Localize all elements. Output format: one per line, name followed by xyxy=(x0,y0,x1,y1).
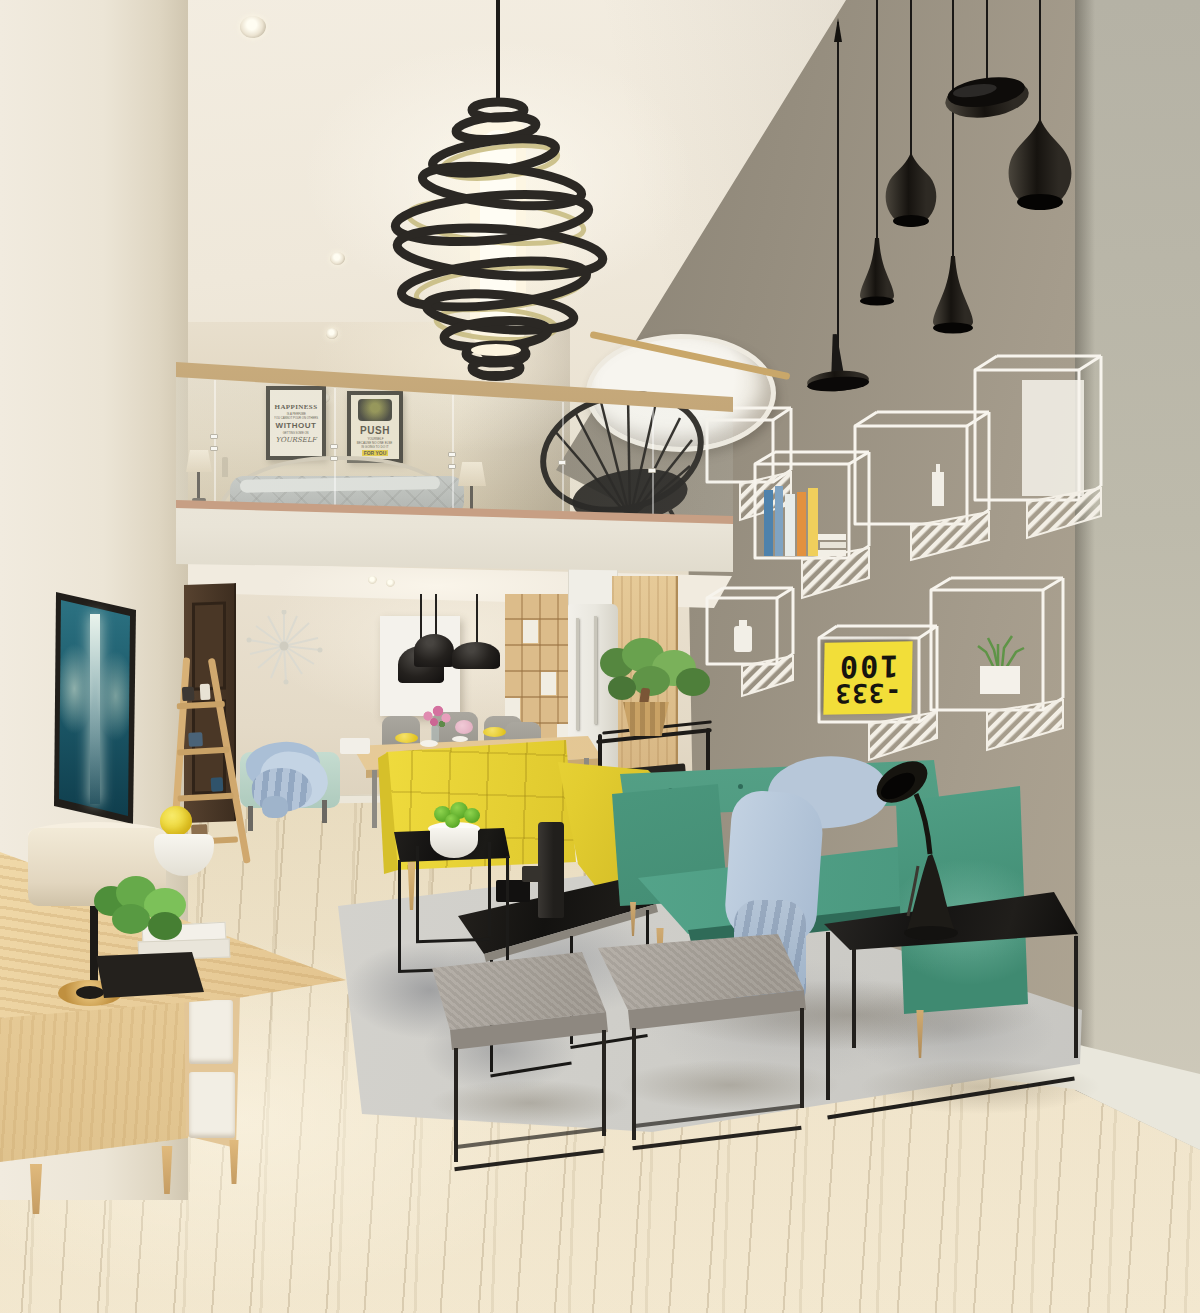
console-drawer xyxy=(189,1000,233,1064)
green-apple xyxy=(445,814,460,828)
table-leg xyxy=(852,948,856,1048)
plant-foliage xyxy=(112,904,150,934)
ottoman-cushion xyxy=(588,922,818,1042)
ottoman-leg xyxy=(800,1008,804,1108)
ottoman-stretcher xyxy=(632,1126,801,1151)
ottoman-stretcher xyxy=(454,1149,603,1171)
glass-clip xyxy=(330,444,338,449)
black-pendant-lamp-cluster xyxy=(778,0,1108,420)
recessed-light-icon xyxy=(368,576,377,584)
blue-blanket xyxy=(262,796,288,818)
black-desk-lamp xyxy=(858,746,968,946)
console-plant xyxy=(88,876,218,1006)
glass-clip xyxy=(648,468,656,473)
ladder-shelf xyxy=(178,793,234,802)
console-leg xyxy=(28,1164,44,1214)
dining-pendant-lamp-icon xyxy=(452,642,500,669)
loft-interior-scene: HAPPINESS IS A PERFUME YOU CANNOT POUR O… xyxy=(0,0,1200,1313)
decor-object xyxy=(522,866,542,882)
recessed-light-icon xyxy=(326,328,338,339)
glass-seam xyxy=(334,388,336,510)
side-console xyxy=(340,738,370,754)
glass-clip xyxy=(448,452,456,457)
tv-artwork-light-beam xyxy=(90,614,100,804)
fridge-handle xyxy=(594,616,597,724)
table-leg xyxy=(416,846,419,942)
green-apple xyxy=(464,808,480,823)
shelf-object xyxy=(188,732,203,747)
glass-clip xyxy=(210,446,218,451)
table-leg xyxy=(1074,936,1078,1058)
trumpet-pendant-icon xyxy=(860,238,894,304)
disc-pendant-icon xyxy=(943,72,1032,122)
glass-clip xyxy=(210,434,218,439)
plant-foliage xyxy=(148,912,182,940)
book-code: 100 xyxy=(838,651,899,681)
flat-disc-pendant-icon xyxy=(804,332,870,393)
cube-shelf-plant xyxy=(928,572,1068,762)
sunburst-wall-clock xyxy=(244,610,324,690)
spiral-ring-chandelier xyxy=(372,0,636,440)
shelf-object xyxy=(182,687,195,702)
table-leg xyxy=(488,842,491,936)
tuft-button xyxy=(738,784,743,789)
bonsai-foliage xyxy=(632,666,670,696)
ottoman-stretcher xyxy=(632,1104,801,1129)
shelf-object xyxy=(200,684,211,701)
pink-flowers xyxy=(455,720,473,734)
cubby-cell xyxy=(541,672,556,695)
pink-roses xyxy=(420,704,452,734)
bowl-body xyxy=(430,828,478,858)
cubby-cell xyxy=(523,620,538,643)
glass-clip xyxy=(330,456,338,461)
recessed-light-icon xyxy=(330,252,345,265)
bench-leg xyxy=(322,800,327,823)
bench-leg xyxy=(248,806,253,831)
recessed-light-icon xyxy=(240,16,266,38)
cube-shelf-jar xyxy=(704,584,800,700)
glass-seam xyxy=(652,407,654,518)
shelf-object xyxy=(211,777,224,792)
ladder-shelf xyxy=(177,747,229,756)
table-leg xyxy=(398,860,401,972)
bonsai-foliage xyxy=(676,668,710,696)
glass-clip xyxy=(448,464,456,469)
cabinet-above-fridge xyxy=(568,564,618,606)
bonsai-foliage xyxy=(608,676,636,700)
table-leg xyxy=(826,932,830,1100)
glass-clip xyxy=(558,460,566,465)
yellow-graphic-book: -333 100 xyxy=(823,641,912,715)
glass-seam xyxy=(214,380,216,502)
recessed-light-icon xyxy=(386,579,395,587)
gray-ottoman xyxy=(588,922,818,1182)
plant-tray xyxy=(96,952,206,1000)
console-leg xyxy=(160,1146,174,1194)
dining-pendant-lamp-icon xyxy=(414,634,454,667)
fridge-handle xyxy=(576,618,579,730)
trumpet-pendant-icon xyxy=(933,256,973,331)
console-drawer xyxy=(189,1072,235,1138)
pendant-cord xyxy=(435,594,437,636)
console-leg xyxy=(228,1140,240,1184)
pendant-cord xyxy=(476,594,478,644)
table-stretcher xyxy=(827,1076,1075,1119)
ottoman-stretcher xyxy=(454,1127,603,1149)
wall-mounted-tv xyxy=(52,588,138,828)
